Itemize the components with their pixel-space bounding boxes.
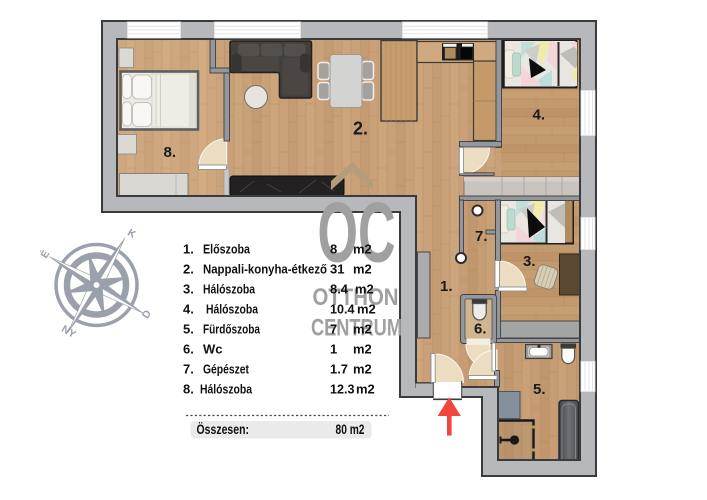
svg-text:1.: 1.: [440, 278, 453, 295]
svg-text:8.: 8.: [183, 382, 194, 397]
svg-text:m2: m2: [356, 382, 375, 397]
svg-text:6.: 6.: [183, 342, 194, 357]
svg-text:Hálószoba: Hálószoba: [200, 382, 253, 397]
svg-text:Összesen:: Összesen:: [197, 422, 250, 437]
svg-text:4.: 4.: [183, 302, 194, 317]
svg-text:6.: 6.: [474, 321, 487, 338]
svg-text:1.: 1.: [183, 242, 194, 257]
svg-text:4.: 4.: [533, 107, 546, 124]
svg-text:Hálószoba: Hálószoba: [203, 282, 256, 297]
svg-text:7: 7: [330, 322, 337, 337]
svg-text:m2: m2: [353, 322, 372, 337]
svg-text:8: 8: [330, 242, 337, 257]
svg-text:m2: m2: [353, 242, 372, 257]
svg-text:Hálószoba: Hálószoba: [206, 302, 259, 317]
svg-text:Fürdőszoba: Fürdőszoba: [203, 322, 261, 337]
svg-text:m2: m2: [353, 262, 372, 277]
svg-text:Gépészet: Gépészet: [203, 362, 250, 377]
svg-text:8.4: 8.4: [330, 282, 349, 297]
svg-text:3.: 3.: [183, 282, 194, 297]
svg-text:7.: 7.: [183, 362, 194, 377]
svg-text:5.: 5.: [183, 322, 194, 337]
svg-text:m2: m2: [353, 362, 372, 377]
svg-text:1: 1: [330, 342, 337, 357]
svg-text:80 m2: 80 m2: [336, 422, 365, 437]
svg-text:m2: m2: [357, 302, 376, 317]
svg-text:2.: 2.: [353, 119, 368, 139]
svg-text:m2: m2: [355, 282, 374, 297]
svg-text:8.: 8.: [164, 144, 177, 161]
svg-text:Előszoba: Előszoba: [203, 242, 251, 257]
svg-text:3.: 3.: [523, 253, 536, 270]
svg-text:2.: 2.: [183, 262, 194, 277]
svg-text:31: 31: [330, 262, 344, 277]
svg-text:7.: 7.: [475, 228, 488, 245]
svg-text:m2: m2: [353, 342, 372, 357]
svg-text:1.7: 1.7: [330, 362, 348, 377]
svg-text:Wc: Wc: [203, 342, 223, 357]
svg-text:12.3: 12.3: [330, 382, 355, 397]
svg-text:Nappali-konyha-étkező: Nappali-konyha-étkező: [203, 262, 327, 277]
svg-text:5.: 5.: [533, 381, 546, 398]
svg-text:10.4: 10.4: [330, 302, 355, 317]
